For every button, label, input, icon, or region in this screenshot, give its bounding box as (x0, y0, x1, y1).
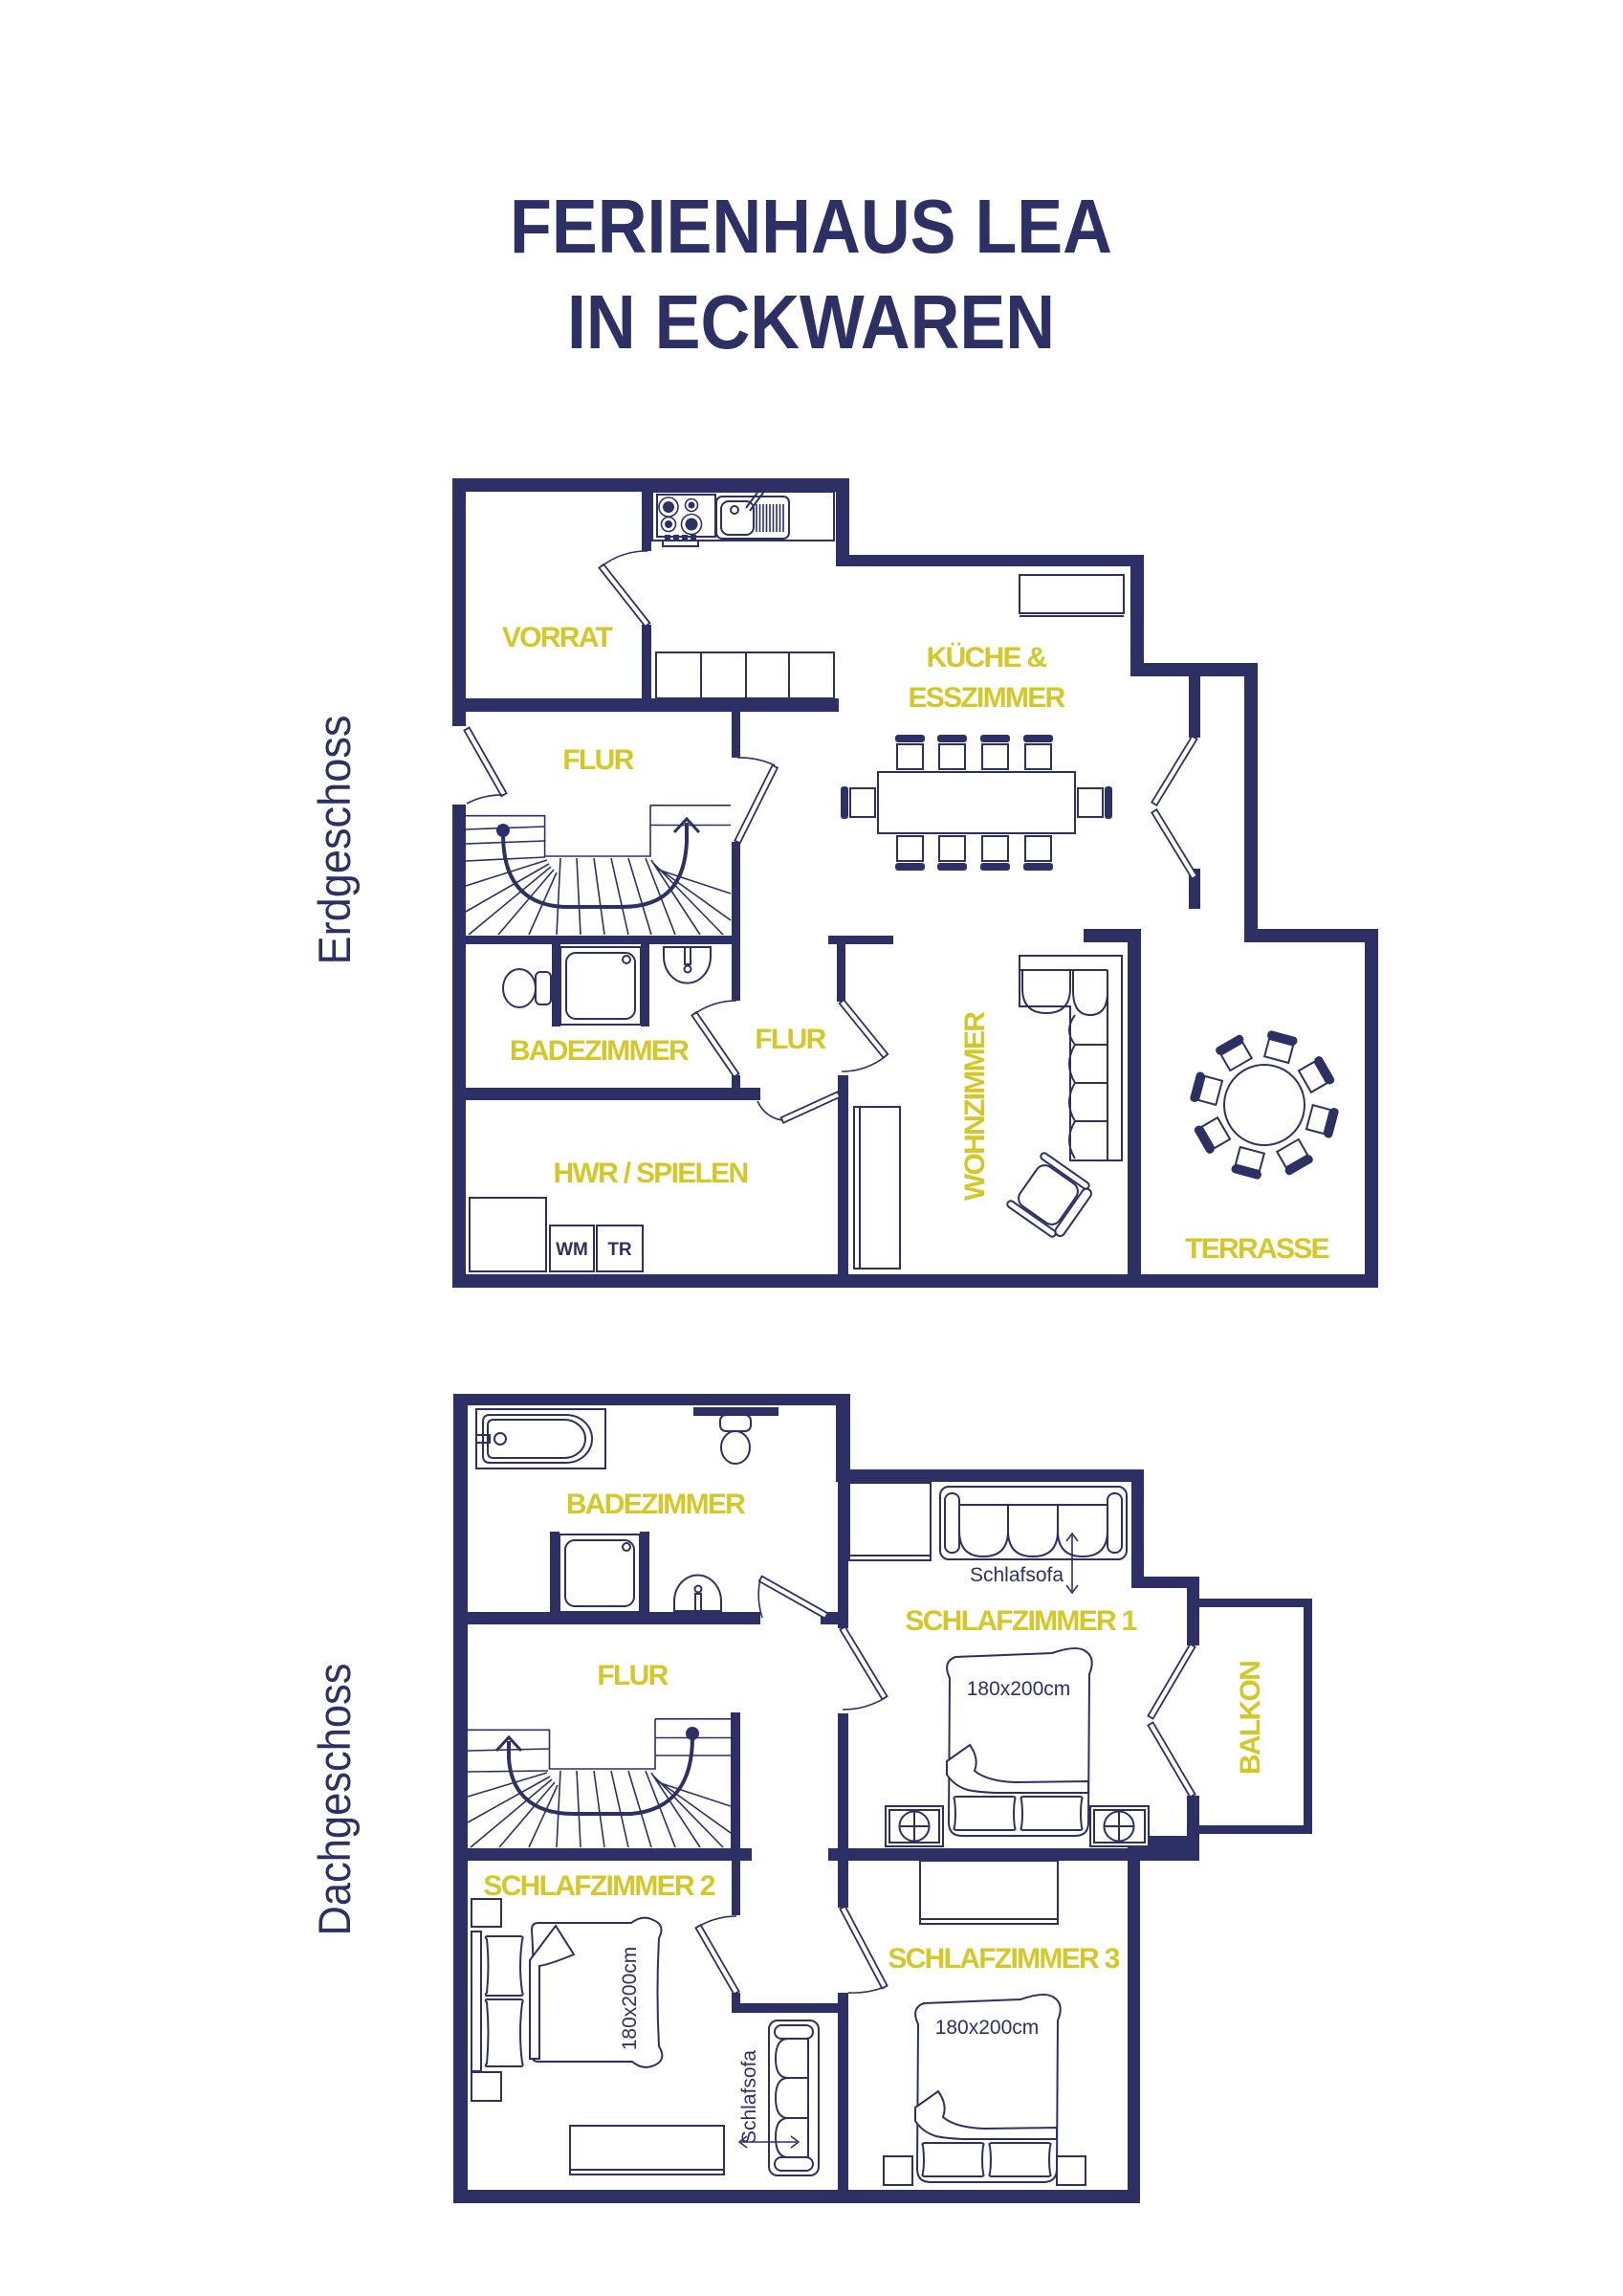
svg-text:TERRASSE: TERRASSE (1185, 1233, 1328, 1265)
svg-text:KÜCHE &: KÜCHE & (927, 642, 1047, 673)
svg-text:180x200cm: 180x200cm (935, 2017, 1040, 2039)
svg-text:Erdgeschoss: Erdgeschoss (309, 716, 360, 965)
svg-text:IN ECKWAREN: IN ECKWAREN (567, 279, 1055, 364)
svg-text:WOHNZIMMER: WOHNZIMMER (959, 1011, 991, 1201)
svg-text:FERIENHAUS LEA: FERIENHAUS LEA (510, 184, 1112, 269)
svg-text:FLUR: FLUR (597, 1660, 669, 1691)
svg-text:BADEZIMMER: BADEZIMMER (510, 1035, 690, 1067)
svg-text:SCHLAFZIMMER 3: SCHLAFZIMMER 3 (888, 1943, 1119, 1975)
svg-text:ESSZIMMER: ESSZIMMER (908, 682, 1065, 714)
svg-text:VORRAT: VORRAT (502, 622, 613, 653)
svg-text:FLUR: FLUR (755, 1024, 826, 1055)
svg-text:Dachgeschoss: Dachgeschoss (309, 1664, 360, 1936)
svg-text:Schlafsofa: Schlafsofa (970, 1564, 1064, 1586)
svg-text:BALKON: BALKON (1235, 1662, 1266, 1775)
svg-text:Schlafsofa: Schlafsofa (738, 2050, 760, 2144)
svg-text:WM: WM (556, 1240, 588, 1260)
svg-text:BADEZIMMER: BADEZIMMER (566, 1489, 746, 1520)
svg-text:HWR / SPIELEN: HWR / SPIELEN (554, 1158, 748, 1189)
svg-text:TR: TR (607, 1240, 632, 1260)
svg-text:SCHLAFZIMMER 1: SCHLAFZIMMER 1 (905, 1605, 1136, 1637)
svg-text:FLUR: FLUR (562, 744, 634, 776)
svg-text:180x200cm: 180x200cm (619, 1947, 641, 2051)
svg-text:180x200cm: 180x200cm (967, 1678, 1071, 1700)
svg-text:SCHLAFZIMMER 2: SCHLAFZIMMER 2 (483, 1870, 714, 1902)
